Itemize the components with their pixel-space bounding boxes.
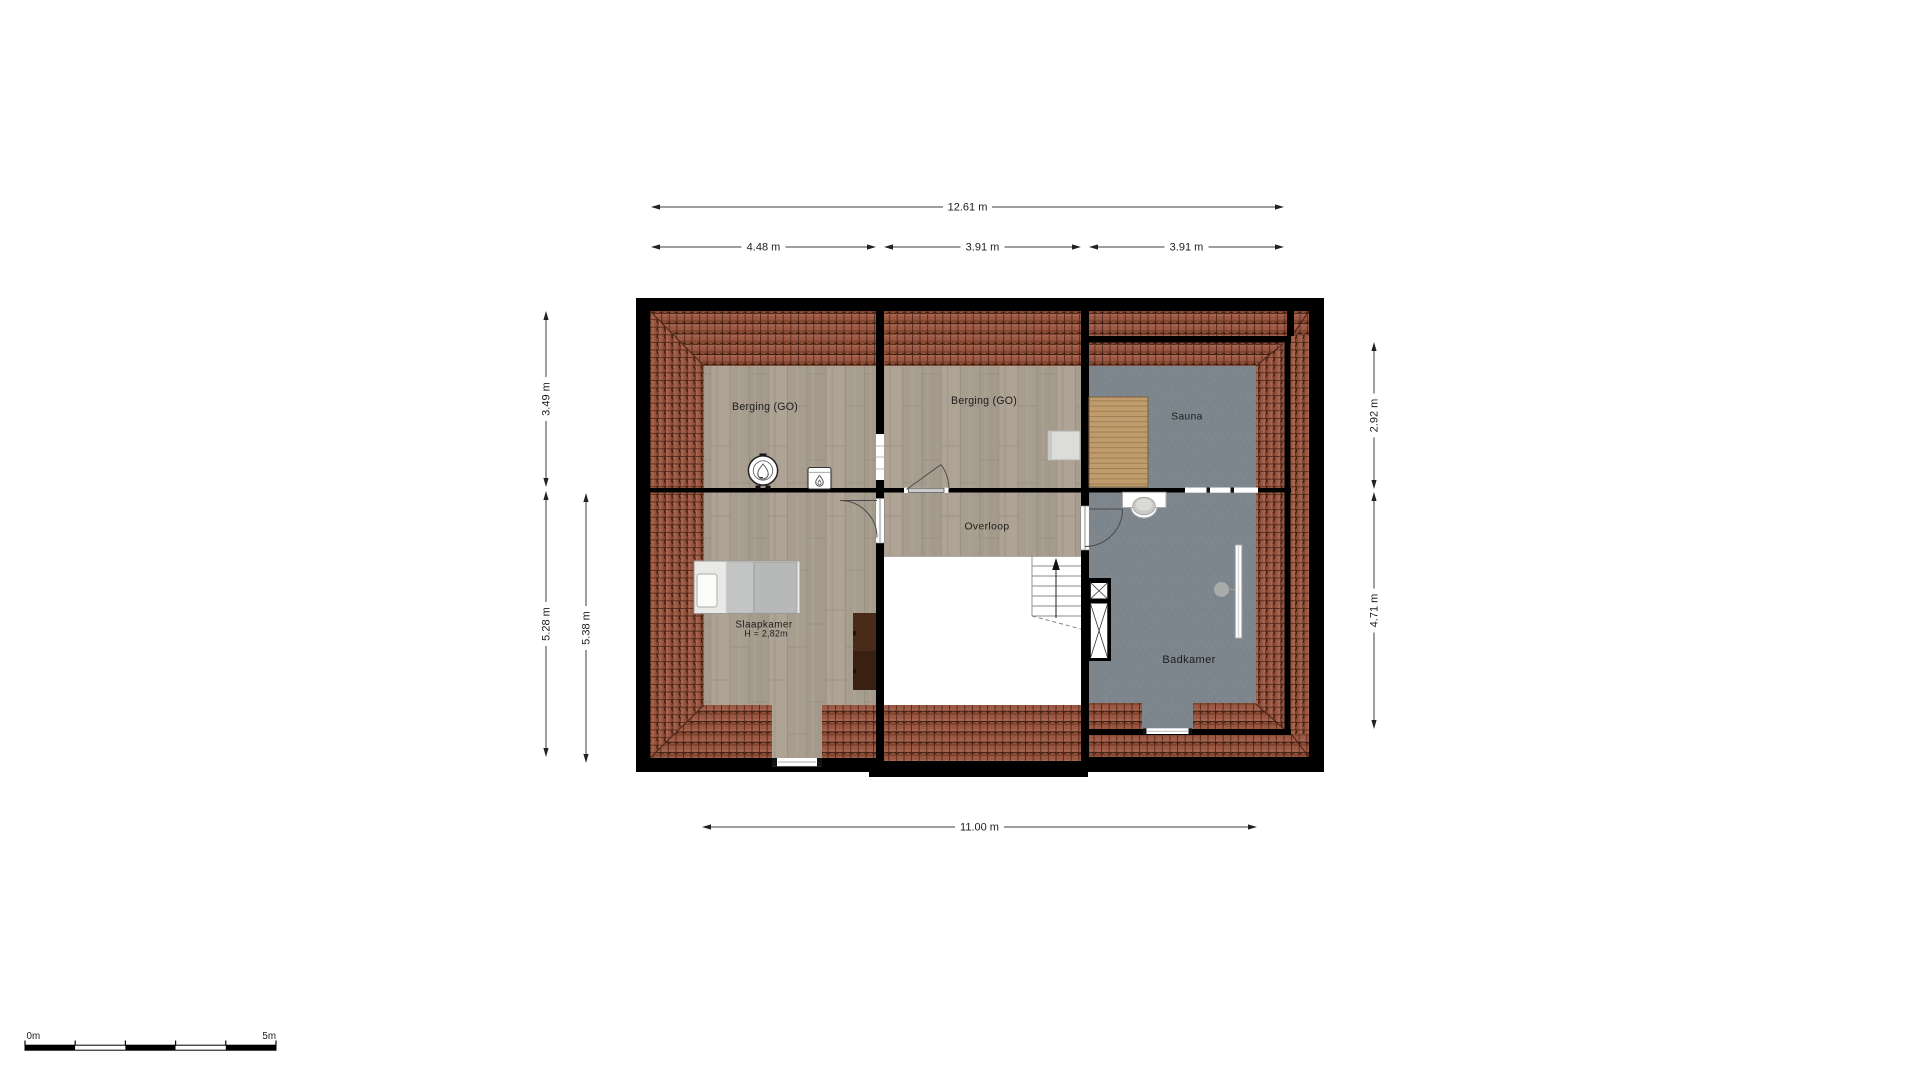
svg-text:Berging (GO): Berging (GO) [732, 401, 798, 413]
svg-text:Overloop: Overloop [965, 521, 1010, 532]
svg-text:Berging (GO): Berging (GO) [951, 395, 1017, 407]
svg-text:12.61 m: 12.61 m [948, 202, 988, 214]
svg-text:5.38 m: 5.38 m [581, 611, 593, 645]
svg-text:Badkamer: Badkamer [1162, 654, 1215, 666]
svg-text:5.28 m: 5.28 m [541, 607, 553, 641]
svg-text:4.48 m: 4.48 m [747, 242, 781, 254]
svg-text:4.71 m: 4.71 m [1369, 594, 1381, 628]
svg-text:3.91 m: 3.91 m [966, 242, 1000, 254]
svg-text:3.49 m: 3.49 m [541, 382, 553, 416]
svg-text:0m: 0m [27, 1031, 41, 1042]
svg-text:2.92 m: 2.92 m [1369, 399, 1381, 433]
svg-text:3.91 m: 3.91 m [1170, 242, 1204, 254]
svg-text:Sauna: Sauna [1171, 412, 1202, 423]
svg-text:H = 2,82m: H = 2,82m [744, 628, 788, 638]
svg-text:5m: 5m [262, 1031, 276, 1042]
svg-text:11.00 m: 11.00 m [960, 822, 999, 834]
